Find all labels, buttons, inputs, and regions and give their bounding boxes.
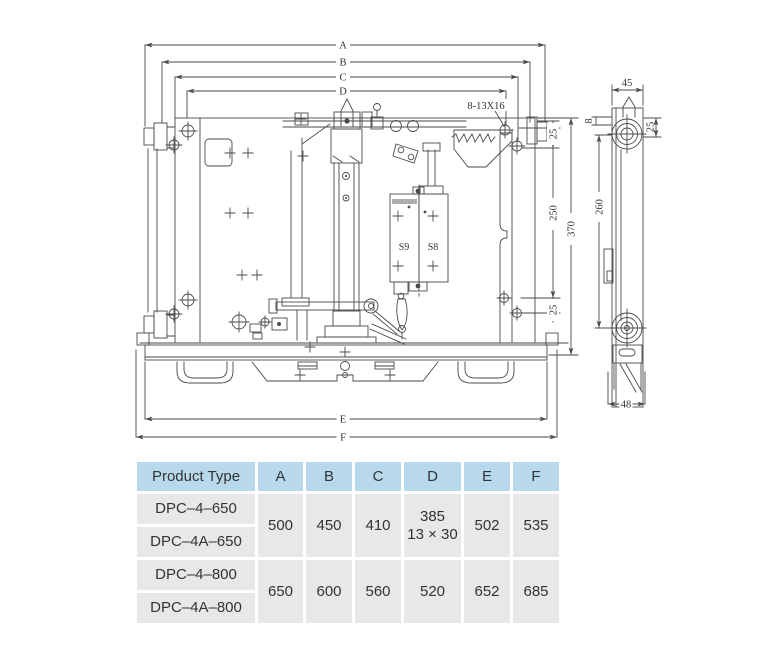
base-tray — [137, 333, 568, 383]
model-cell: DPC–4–650 — [137, 494, 255, 524]
dim-label-25-top: 25 — [549, 129, 560, 140]
dim-label-370: 370 — [567, 221, 578, 237]
dim-label-250: 250 — [549, 205, 560, 221]
col-header-d: D — [404, 462, 461, 491]
value-d-line1: 385 — [420, 508, 445, 526]
dim-label-d: D — [339, 87, 347, 98]
value-cell-e: 652 — [464, 560, 510, 623]
dim-label-e: E — [340, 415, 346, 426]
value-cell-b: 450 — [306, 494, 352, 557]
side-dim-260: 260 — [595, 199, 606, 215]
value-cell-d: 520 — [404, 560, 461, 623]
dim-label-25-bottom: 25 — [549, 305, 560, 316]
switch-label-s9: S9 — [399, 242, 410, 253]
side-dim-48: 48 — [621, 400, 632, 411]
spec-table: Product Type A B C D E F DPC–4–650 DPC–4… — [137, 462, 559, 623]
value-d-line2: 13 × 30 — [407, 526, 457, 544]
value-cell-c: 410 — [355, 494, 401, 557]
col-header-c: C — [355, 462, 401, 491]
model-cell: DPC–4A–800 — [137, 593, 255, 623]
main-view — [144, 99, 547, 344]
technical-drawing: A B C D E F 8-13X16 25 250 370 25 S9 S8 … — [0, 0, 768, 460]
col-header-e: E — [464, 462, 510, 491]
value-cell-c: 560 — [355, 560, 401, 623]
value-cell-d: 385 13 × 30 — [404, 494, 461, 557]
dim-label-b: B — [339, 58, 346, 69]
col-header-a: A — [258, 462, 303, 491]
value-cell-f: 685 — [513, 560, 559, 623]
side-dim-8: 8 — [584, 118, 595, 123]
dim-label-f: F — [340, 433, 346, 444]
value-cell-f: 535 — [513, 494, 559, 557]
side-dim-25: 25 — [646, 122, 657, 133]
hole-callout: 8-13X16 — [467, 101, 504, 112]
catalog-page: A B C D E F 8-13X16 25 250 370 25 S9 S8 … — [0, 0, 768, 647]
side-dim-45: 45 — [622, 78, 633, 89]
value-cell-a: 500 — [258, 494, 303, 557]
value-cell-b: 600 — [306, 560, 352, 623]
dim-label-c: C — [339, 73, 346, 84]
side-view — [592, 85, 661, 407]
col-header-b: B — [306, 462, 352, 491]
model-cell: DPC–4A–650 — [137, 527, 255, 557]
col-header-product-type: Product Type — [137, 462, 255, 491]
col-header-f: F — [513, 462, 559, 491]
switch-label-s8: S8 — [428, 242, 439, 253]
model-cell: DPC–4–800 — [137, 560, 255, 590]
value-cell-e: 502 — [464, 494, 510, 557]
dim-label-a: A — [339, 41, 347, 52]
value-cell-a: 650 — [258, 560, 303, 623]
